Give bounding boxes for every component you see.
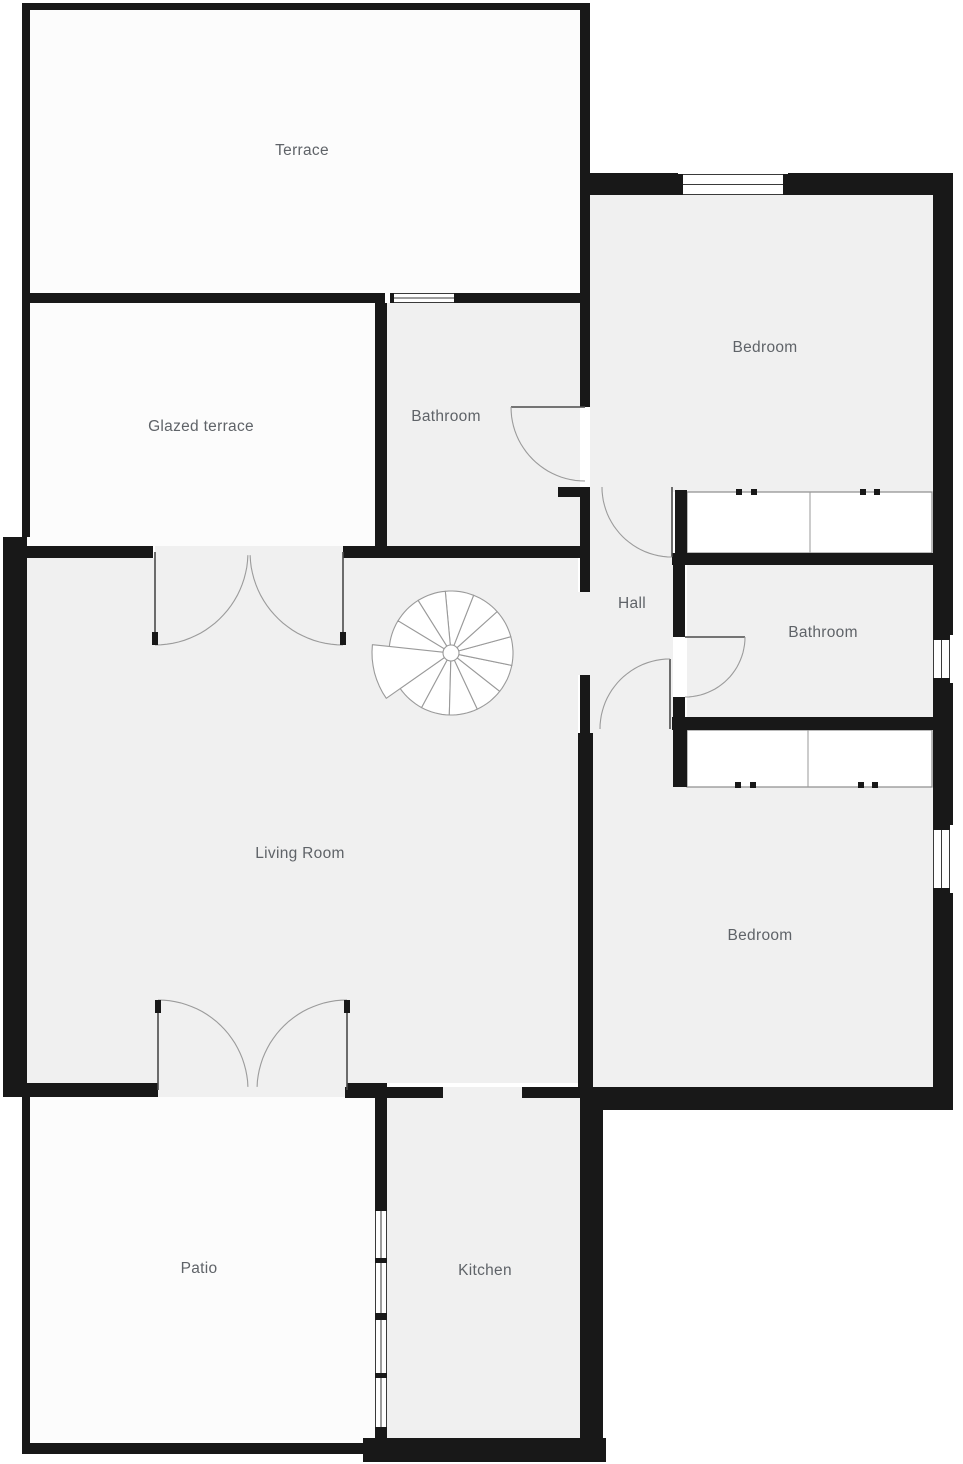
kitchen-window-cap-0 bbox=[375, 1205, 387, 1211]
wall-segment bbox=[580, 675, 590, 733]
wall-segment bbox=[578, 733, 593, 1090]
terrace-door-right-jamb-tick bbox=[340, 632, 346, 645]
floor-plan-canvas: TerraceGlazed terraceBathroomBedroomHall… bbox=[0, 0, 963, 1464]
wall-segment bbox=[522, 1087, 593, 1098]
closet-top-tick-2 bbox=[860, 489, 866, 495]
kitchen-window-cap-3 bbox=[375, 1373, 387, 1378]
kitchen-window-cap-4 bbox=[375, 1427, 387, 1433]
closet-bottom-tick-3 bbox=[872, 782, 878, 788]
wall-segment bbox=[458, 293, 580, 303]
wall-segment bbox=[673, 697, 685, 717]
bedroom-top-window-cap-1 bbox=[783, 174, 788, 195]
wall-segment bbox=[675, 490, 687, 553]
wall-segment bbox=[27, 546, 153, 558]
wall-segment bbox=[673, 730, 687, 787]
room-floor-bathroom-right bbox=[687, 565, 933, 717]
wall-segment bbox=[3, 537, 27, 1097]
wall-segment bbox=[585, 1087, 953, 1110]
closet-bottom-tick-0 bbox=[735, 782, 741, 788]
bedroom-top-window-cap-0 bbox=[678, 174, 683, 195]
wall-segment bbox=[22, 3, 590, 10]
wall-segment bbox=[22, 1443, 378, 1454]
bedroom-bottom-window-cap-0 bbox=[933, 825, 950, 830]
closet-top-tick-1 bbox=[751, 489, 757, 495]
wall-segment bbox=[363, 1438, 606, 1462]
closet-top-tick-0 bbox=[736, 489, 742, 495]
bathroom-top-window-cap-1 bbox=[454, 293, 458, 303]
floor-plan: TerraceGlazed terraceBathroomBedroomHall… bbox=[0, 0, 963, 1464]
stair-hub bbox=[443, 645, 459, 661]
wall-segment bbox=[22, 1085, 30, 1453]
wall-segment bbox=[345, 1087, 443, 1098]
room-label-patio: Patio bbox=[181, 1260, 218, 1277]
wall-segment bbox=[933, 893, 953, 1110]
wall-segment bbox=[673, 565, 685, 637]
floor-patch-hall-living-opening bbox=[578, 592, 593, 675]
wall-segment bbox=[933, 683, 953, 825]
room-label-kitchen: Kitchen bbox=[458, 1262, 512, 1279]
patio-door-left-jamb-tick bbox=[155, 1000, 161, 1013]
room-label-bedroom-top: Bedroom bbox=[733, 339, 798, 356]
wall-segment bbox=[933, 173, 953, 635]
wall-segment bbox=[343, 546, 590, 558]
bedroom-bottom-window-cap-1 bbox=[933, 888, 950, 893]
wall-segment bbox=[22, 293, 385, 303]
closet-bottom-tick-1 bbox=[750, 782, 756, 788]
wall-segment bbox=[580, 3, 590, 303]
kitchen-window-cap-2 bbox=[375, 1313, 387, 1320]
closet-bottom-tick-2 bbox=[858, 782, 864, 788]
room-label-bedroom-bottom: Bedroom bbox=[728, 927, 793, 944]
wall-segment bbox=[788, 173, 953, 195]
room-label-terrace: Terrace bbox=[275, 142, 329, 159]
room-label-glazed-terrace: Glazed terrace bbox=[148, 418, 254, 435]
wall-segment bbox=[375, 1433, 387, 1443]
bathroom-top-window-cap-0 bbox=[390, 293, 394, 303]
bathroom-right-window-cap-0 bbox=[933, 635, 950, 640]
terrace-door-left-jamb-tick bbox=[152, 632, 158, 645]
room-label-hall: Hall bbox=[618, 595, 646, 612]
room-label-bathroom-right: Bathroom bbox=[788, 624, 858, 641]
wall-segment bbox=[580, 487, 590, 592]
wall-segment bbox=[580, 303, 590, 407]
kitchen-window-cap-1 bbox=[375, 1258, 387, 1263]
wall-segment bbox=[672, 553, 935, 565]
wall-segment bbox=[375, 1087, 387, 1205]
room-label-living-room: Living Room bbox=[255, 845, 344, 862]
closet-bottom bbox=[687, 730, 932, 787]
wall-segment bbox=[580, 1090, 603, 1460]
floor-patch-terrace-door-opening bbox=[155, 546, 343, 558]
wall-segment bbox=[672, 717, 933, 730]
wall-segment bbox=[22, 3, 30, 537]
bathroom-right-window-cap-1 bbox=[933, 678, 950, 683]
floor-patch-kitchen-opening bbox=[443, 1087, 522, 1098]
floor-patch-patio-door-opening bbox=[158, 1083, 347, 1097]
wall-segment bbox=[27, 1083, 158, 1097]
wall-segment bbox=[583, 173, 678, 195]
wall-segment bbox=[375, 303, 387, 546]
closet-top-tick-3 bbox=[874, 489, 880, 495]
patio-door-right-jamb-tick bbox=[344, 1000, 350, 1013]
room-label-bathroom-top: Bathroom bbox=[411, 408, 481, 425]
